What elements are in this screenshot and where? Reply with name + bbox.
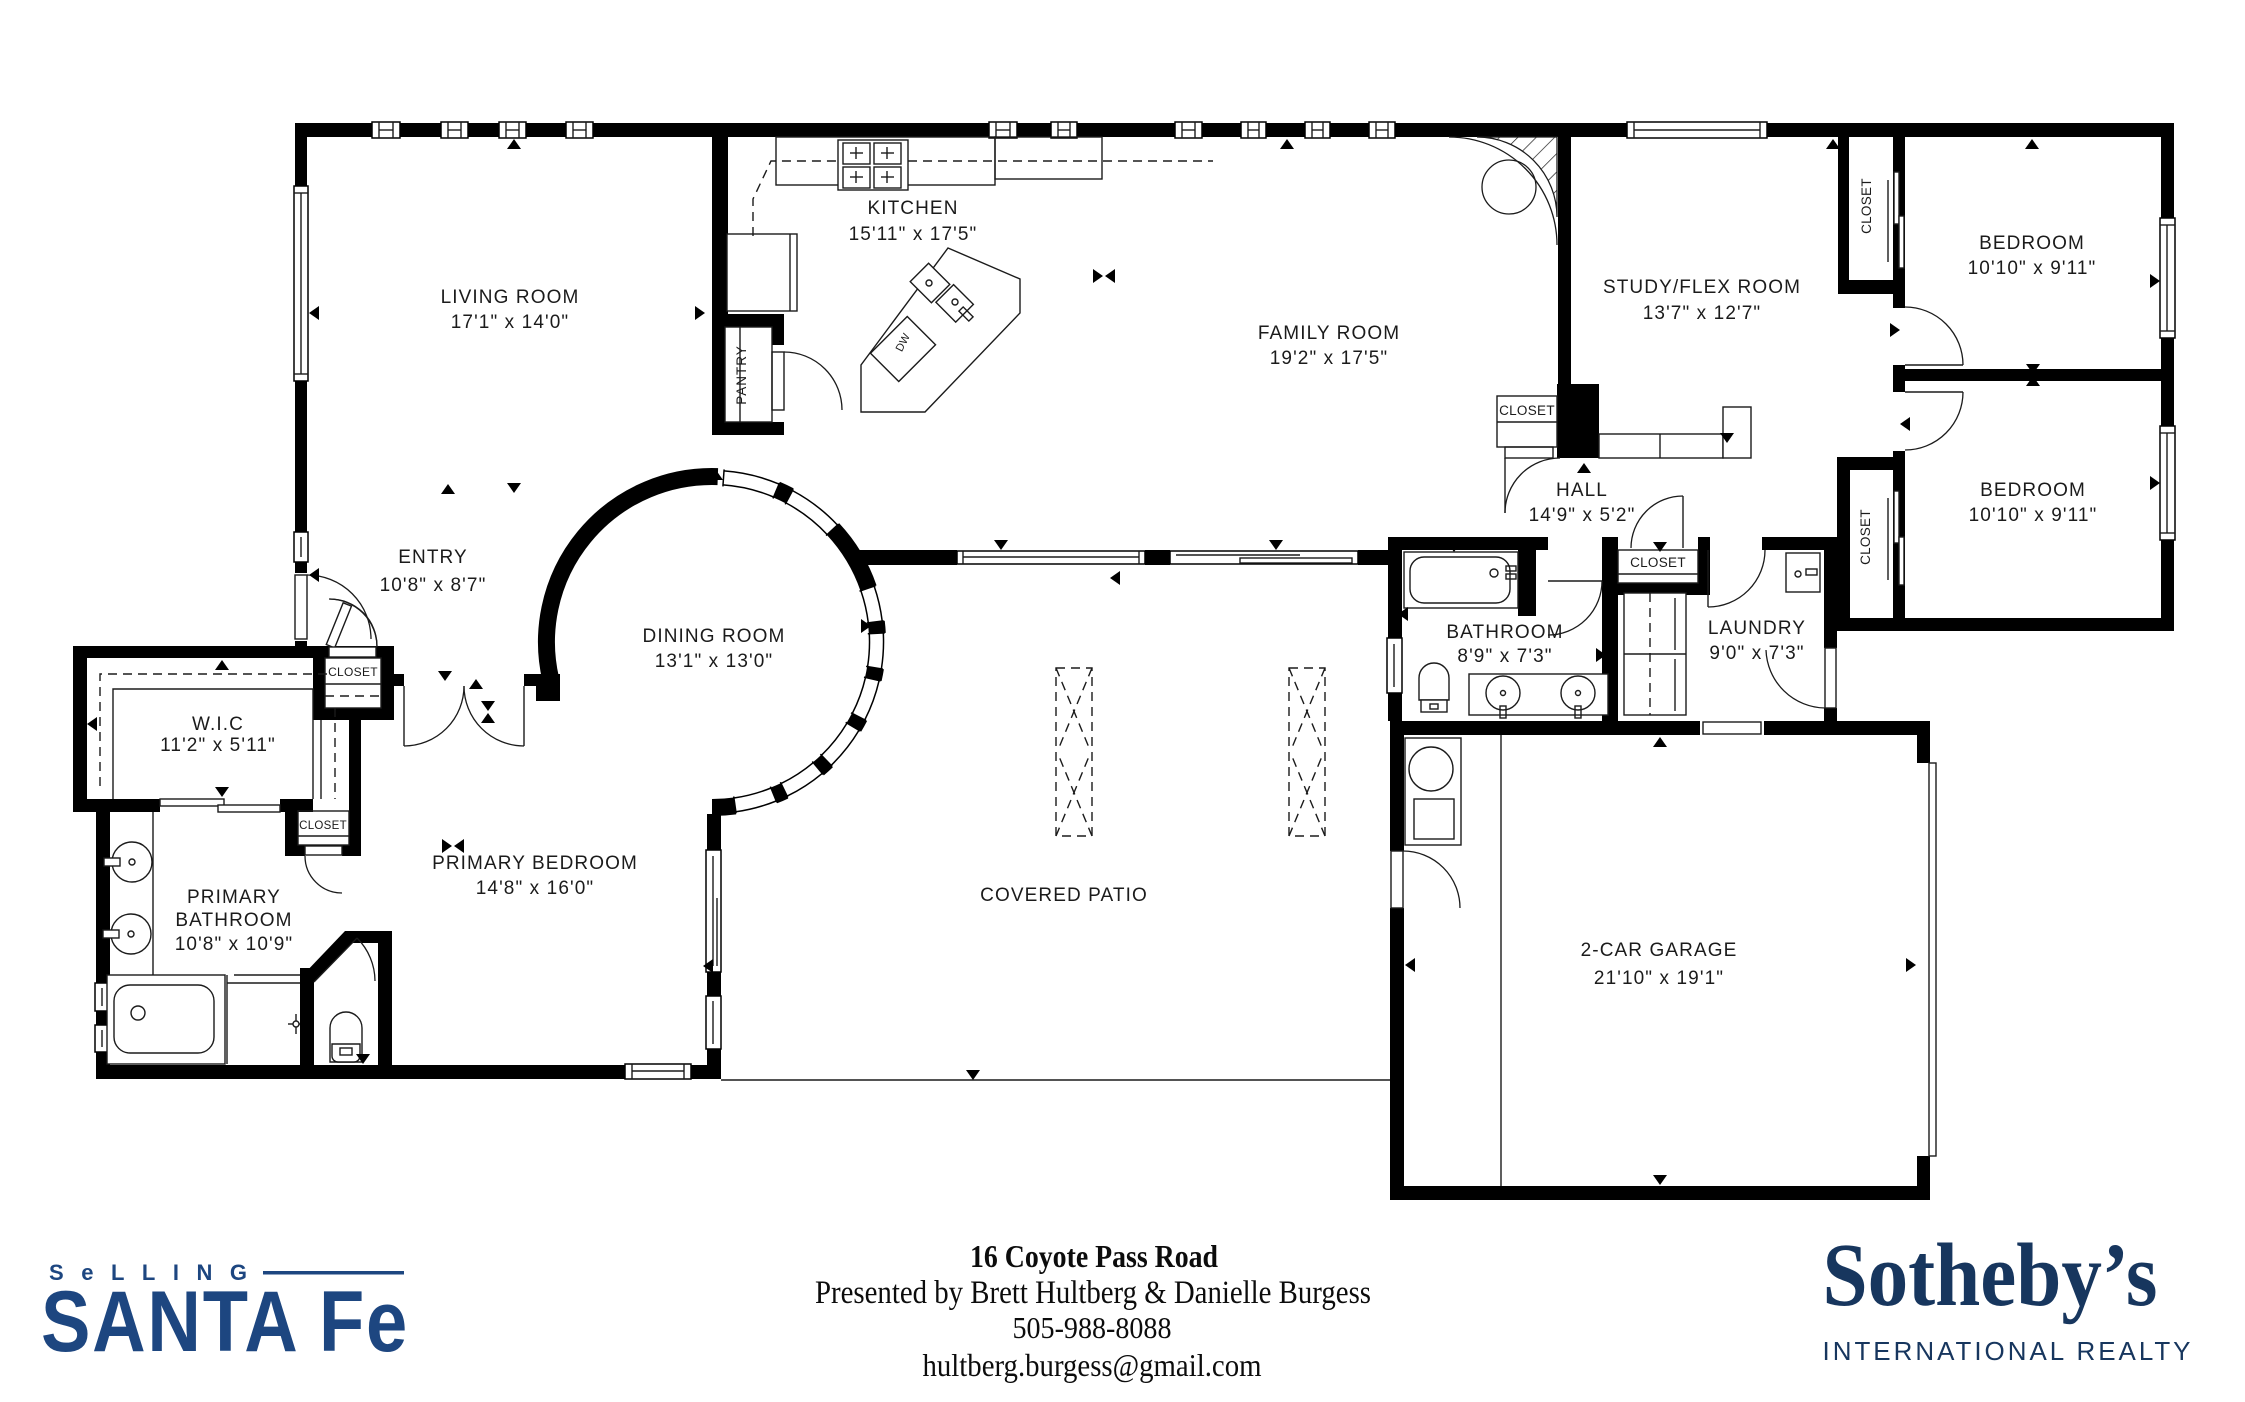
- svg-text:10'10" x 9'11": 10'10" x 9'11": [1969, 505, 2098, 526]
- svg-text:10'10" x 9'11": 10'10" x 9'11": [1968, 258, 2097, 279]
- svg-text:8'9" x 7'3": 8'9" x 7'3": [1457, 646, 1552, 667]
- svg-text:14'8" x 16'0": 14'8" x 16'0": [476, 878, 595, 899]
- svg-text:17'1" x 14'0": 17'1" x 14'0": [451, 312, 570, 333]
- svg-text:10'8" x 8'7": 10'8" x 8'7": [380, 575, 487, 596]
- svg-text:13'1" x 13'0": 13'1" x 13'0": [655, 651, 774, 672]
- svg-text:BATHROOM: BATHROOM: [1446, 622, 1563, 643]
- svg-text:BEDROOM: BEDROOM: [1980, 480, 2086, 501]
- svg-text:Sotheby’s: Sotheby’s: [1823, 1226, 2158, 1325]
- svg-text:DINING ROOM: DINING ROOM: [643, 626, 786, 647]
- svg-text:2-CAR GARAGE: 2-CAR GARAGE: [1581, 940, 1738, 961]
- svg-text:CLOSET: CLOSET: [299, 820, 347, 832]
- svg-text:PANTRY: PANTRY: [734, 345, 749, 405]
- svg-text:CLOSET: CLOSET: [1859, 178, 1874, 234]
- svg-text:CLOSET: CLOSET: [328, 665, 378, 679]
- svg-text:CLOSET: CLOSET: [1630, 555, 1686, 570]
- svg-text:CLOSET: CLOSET: [1858, 509, 1873, 565]
- svg-text:Presented by Brett Hultberg &: Presented by Brett Hultberg & Danielle B…: [815, 1275, 1371, 1311]
- svg-text:SANTA Fe: SANTA Fe: [41, 1274, 409, 1370]
- svg-text:LAUNDRY: LAUNDRY: [1708, 618, 1806, 639]
- svg-text:21'10" x 19'1": 21'10" x 19'1": [1594, 968, 1724, 989]
- svg-text:505-988-8088: 505-988-8088: [1013, 1310, 1172, 1345]
- svg-text:STUDY/FLEX ROOM: STUDY/FLEX ROOM: [1603, 277, 1801, 298]
- svg-text:11'2" x 5'11": 11'2" x 5'11": [160, 735, 276, 756]
- svg-text:W.I.C: W.I.C: [192, 714, 244, 735]
- svg-text:COVERED PATIO: COVERED PATIO: [980, 885, 1148, 906]
- svg-text:LIVING ROOM: LIVING ROOM: [441, 287, 580, 308]
- svg-text:BATHROOM: BATHROOM: [175, 910, 292, 931]
- svg-text:CLOSET: CLOSET: [1499, 403, 1555, 418]
- svg-text:FAMILY ROOM: FAMILY ROOM: [1258, 323, 1400, 344]
- svg-text:9'0" x 7'3": 9'0" x 7'3": [1709, 643, 1804, 664]
- svg-text:10'8" x 10'9": 10'8" x 10'9": [175, 934, 294, 955]
- svg-text:ENTRY: ENTRY: [398, 547, 468, 568]
- svg-text:13'7" x 12'7": 13'7" x 12'7": [1643, 303, 1762, 324]
- svg-text:14'9" x 5'2": 14'9" x 5'2": [1529, 505, 1636, 526]
- svg-text:PRIMARY: PRIMARY: [187, 887, 281, 908]
- svg-text:19'2" x 17'5": 19'2" x 17'5": [1270, 348, 1389, 369]
- svg-text:PRIMARY BEDROOM: PRIMARY BEDROOM: [432, 853, 638, 874]
- svg-text:BEDROOM: BEDROOM: [1979, 233, 2085, 254]
- svg-text:15'11" x 17'5": 15'11" x 17'5": [849, 224, 978, 245]
- svg-text:INTERNATIONAL REALTY: INTERNATIONAL REALTY: [1823, 1336, 2194, 1366]
- svg-text:KITCHEN: KITCHEN: [867, 198, 958, 219]
- svg-text:HALL: HALL: [1556, 480, 1608, 501]
- svg-text:16 Coyote Pass Road: 16 Coyote Pass Road: [970, 1239, 1218, 1274]
- svg-text:hultberg.burgess@gmail.com: hultberg.burgess@gmail.com: [923, 1348, 1262, 1383]
